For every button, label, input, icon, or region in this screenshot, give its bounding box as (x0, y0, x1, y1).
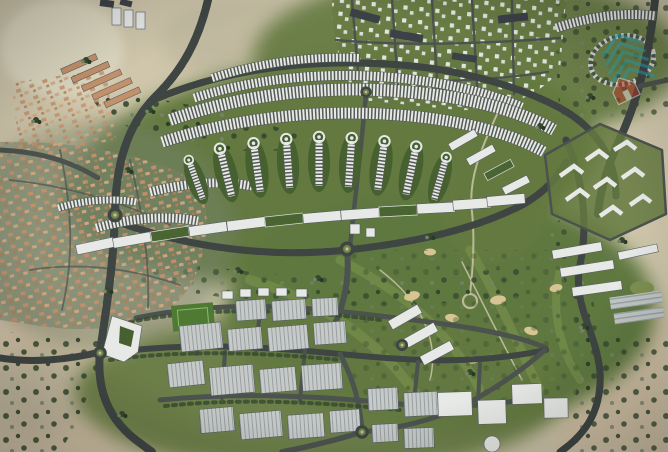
masterplan-aerial-image (0, 0, 668, 452)
masterplan-canvas (0, 0, 668, 452)
vignette-overlay (0, 0, 668, 452)
